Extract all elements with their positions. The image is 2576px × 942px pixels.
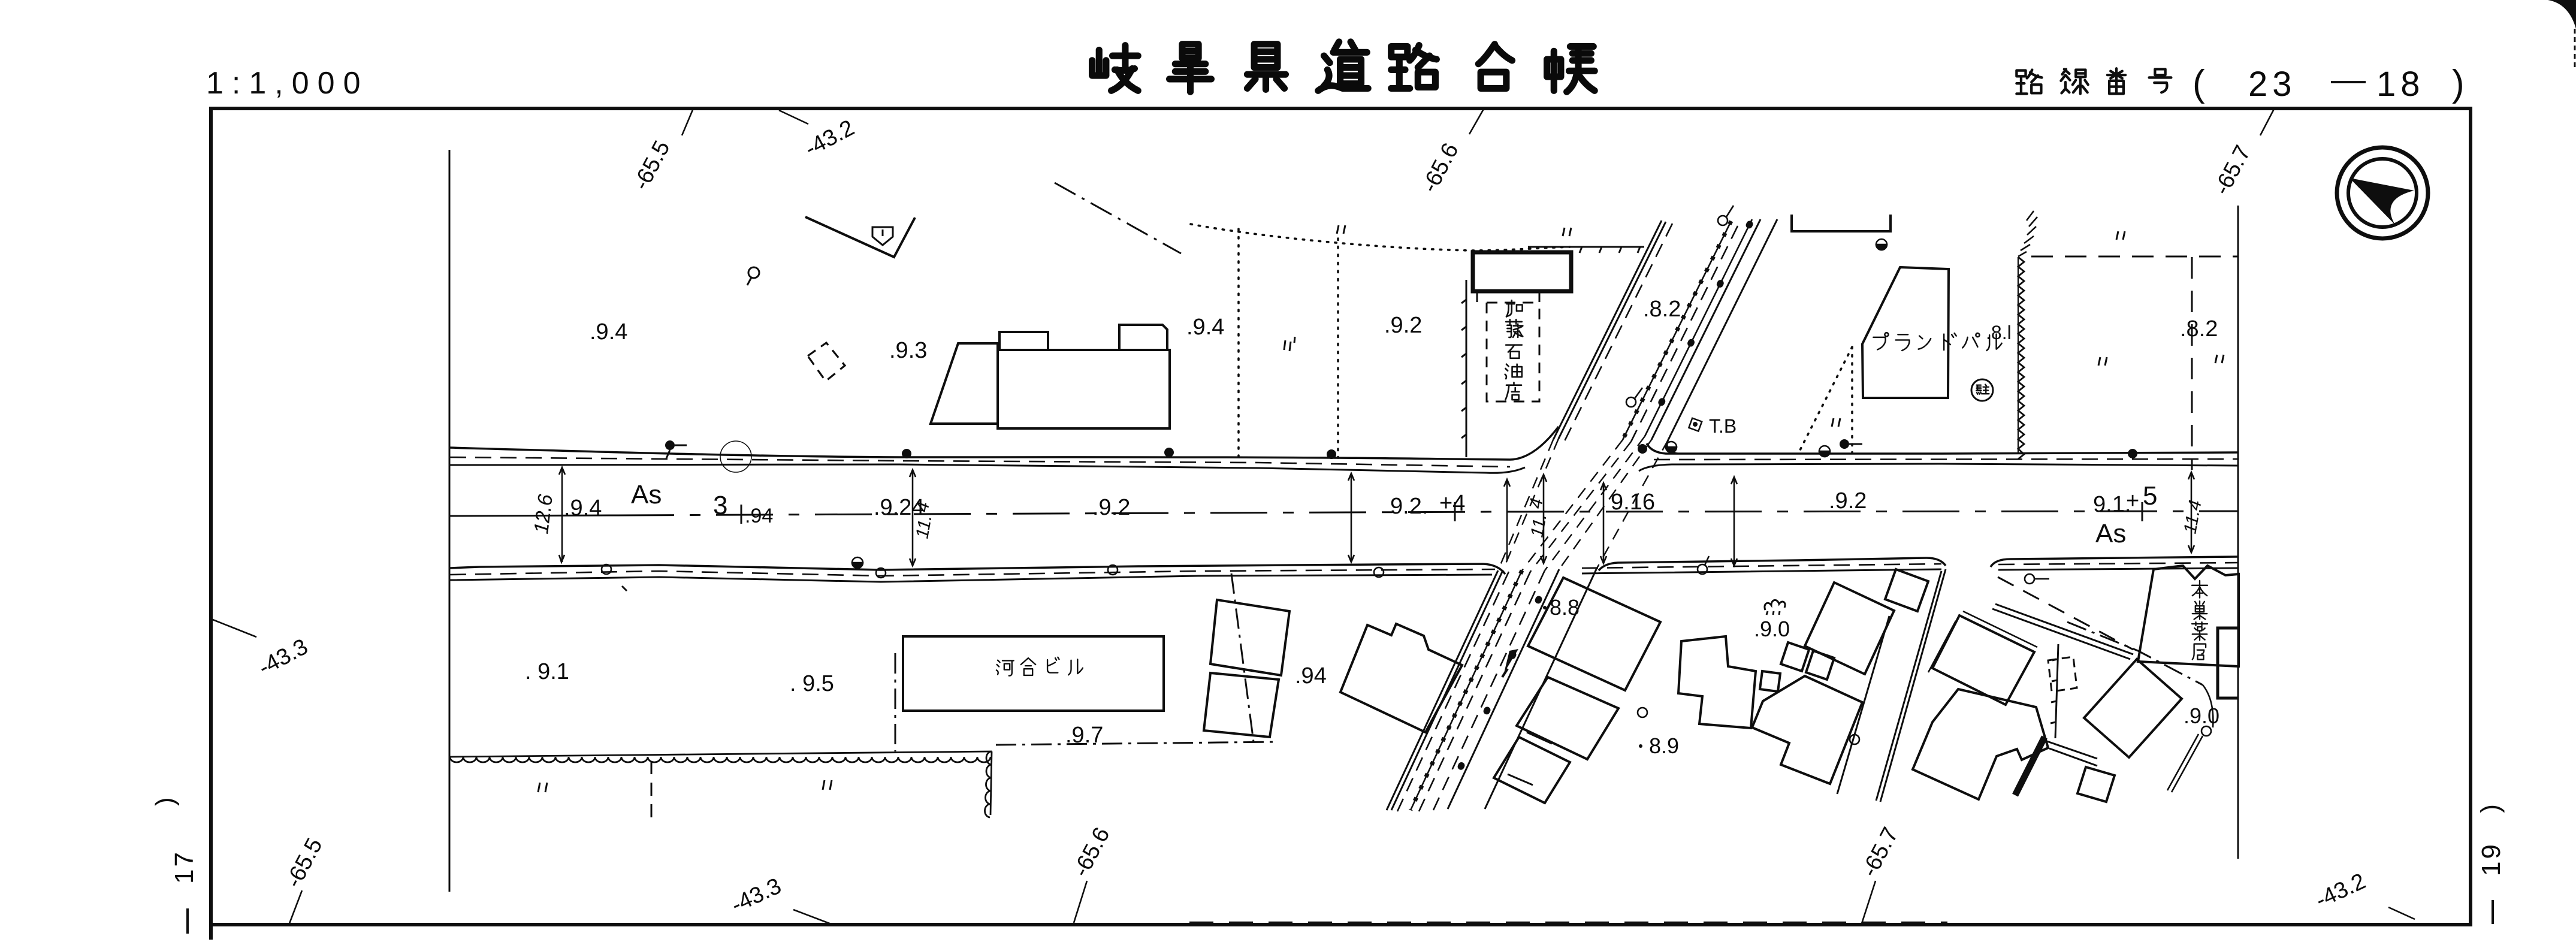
svg-text:(: ( <box>2480 804 2509 813</box>
svg-text:—: — <box>2331 60 2366 99</box>
svg-text:11.: 11. <box>1527 512 1550 539</box>
svg-text:.9.4: .9.4 <box>1186 315 1224 340</box>
svg-text:As: As <box>631 480 662 509</box>
svg-text:8.8: 8.8 <box>1550 595 1580 620</box>
svg-text:As: As <box>2095 519 2126 548</box>
svg-text:.9.4: .9.4 <box>590 319 627 345</box>
svg-text:): ) <box>150 797 180 806</box>
svg-text:17: 17 <box>170 850 199 884</box>
svg-text:.9.3: .9.3 <box>889 338 927 363</box>
svg-text:23: 23 <box>2248 65 2297 104</box>
svg-text:.9.4: .9.4 <box>564 496 602 521</box>
svg-text:3: 3 <box>713 491 727 520</box>
svg-text:9.1.: 9.1. <box>2093 492 2131 517</box>
svg-text:.9.2: .9.2 <box>1092 495 1130 520</box>
svg-text:.9.24: .9.24 <box>874 495 925 520</box>
svg-text:5: 5 <box>2143 481 2157 511</box>
svg-text:): ) <box>2452 63 2465 104</box>
svg-text:. 9.1: . 9.1 <box>525 659 569 684</box>
svg-text:8.9: 8.9 <box>1649 733 1679 758</box>
svg-text:.9.0: .9.0 <box>2184 704 2219 728</box>
svg-text:T.B: T.B <box>1709 415 1737 437</box>
svg-text:.8.2: .8.2 <box>1643 297 1681 322</box>
svg-text:.8.2: .8.2 <box>2180 316 2218 342</box>
svg-text:.94: .94 <box>1295 663 1327 689</box>
svg-text:. 9.5: . 9.5 <box>790 671 834 696</box>
svg-text:+: + <box>2126 488 2139 514</box>
svg-text:.9.0: .9.0 <box>1754 617 1790 641</box>
svg-text:.94: .94 <box>745 505 773 527</box>
svg-text:9.2.: 9.2. <box>1390 494 1428 519</box>
svg-text:(: ( <box>2193 63 2205 104</box>
svg-text:.9.7: .9.7 <box>1065 723 1103 748</box>
svg-text:12.6: 12.6 <box>530 493 557 535</box>
svg-text:.8.l: .8.l <box>1986 322 2012 343</box>
svg-text:1:1,000: 1:1,000 <box>206 66 369 101</box>
svg-text:18: 18 <box>2376 65 2425 104</box>
svg-text:.9.2: .9.2 <box>1384 313 1422 338</box>
svg-text:+4: +4 <box>1439 491 1465 516</box>
svg-text:19: 19 <box>2477 842 2506 876</box>
svg-text:.9.2: .9.2 <box>1829 488 1867 514</box>
